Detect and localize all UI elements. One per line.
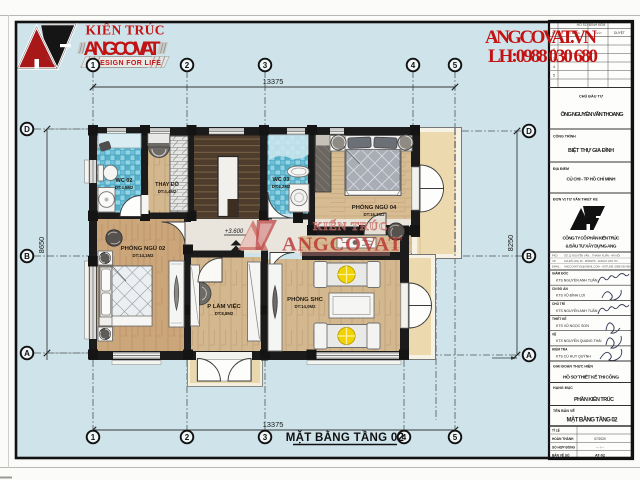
svg-text:VẼ: VẼ [552,331,556,336]
svg-text:1: 1 [91,61,96,70]
svg-text:BIỆT THỰ GIA ĐÌNH: BIỆT THỰ GIA ĐÌNH [568,146,614,154]
svg-text:B: B [526,252,532,261]
svg-text:13375: 13375 [263,420,284,429]
svg-text:8650: 8650 [37,237,46,254]
svg-text:DT:16,1M2: DT:16,1M2 [363,212,385,217]
svg-text:+3.600: +3.600 [225,229,244,235]
svg-text:HẠNG MỤC: HẠNG MỤC [553,386,573,390]
svg-text:4: 4 [411,61,416,70]
svg-text:P LÀM VIỆC: P LÀM VIỆC [207,302,241,310]
svg-text:VP:: VP: [552,259,556,263]
svg-text:GIÁM ĐỐC: GIÁM ĐỐC [552,271,569,276]
svg-text:KTS VŨ NGỌC SƠN: KTS VŨ NGỌC SƠN [556,323,589,328]
svg-text:PKD:: PKD: [552,254,558,258]
svg-text:KIẾN TRÚC: KIẾN TRÚC [86,23,167,38]
svg-text:ÔNG NGUYỄN VĂN THOANG: ÔNG NGUYỄN VĂN THOANG [561,110,625,118]
svg-text:3: 3 [263,433,268,442]
svg-text:DT:14,1M2: DT:14,1M2 [132,253,154,258]
svg-text:13375: 13375 [263,77,284,86]
svg-text:HOÀN THÀNH: HOÀN THÀNH [552,436,574,441]
svg-text:EMAIL:: EMAIL: [552,265,561,269]
svg-text:CÔNG TY CỔ PHẦN KIẾN TRÚC: CÔNG TY CỔ PHẦN KIẾN TRÚC [563,234,621,241]
svg-text:KIỂM TRA: KIỂM TRA [552,346,568,351]
svg-text:DESIGN FOR LIFE: DESIGN FOR LIFE [95,60,162,67]
svg-text:GIAI ĐOẠN THỰC HIỆN: GIAI ĐOẠN THỰC HIỆN [553,364,593,369]
svg-text:PHẦN KIẾN TRÚC: PHẦN KIẾN TRÚC [574,396,614,403]
svg-text:CHỦ TRÌ: CHỦ TRÌ [552,301,565,306]
svg-text:07/2020: 07/2020 [594,437,606,441]
svg-text:5: 5 [553,74,555,78]
svg-text:THIẾT KẾ: THIẾT KẾ [552,316,567,321]
svg-text:KTS CÙ HUY QUỲNH: KTS CÙ HUY QUỲNH [556,354,591,358]
svg-text:CÔNG TRÌNH: CÔNG TRÌNH [553,134,576,139]
svg-text:PHÒNG SHC: PHÒNG SHC [287,295,323,303]
svg-text:KTS NGUYỄN ANH TUẤN: KTS NGUYỄN ANH TUẤN [556,278,598,283]
svg-text:5: 5 [453,433,458,442]
svg-text:DT:14,0M2: DT:14,0M2 [294,304,316,309]
svg-text:SỐ HỢP ĐỒNG: SỐ HỢP ĐỒNG [552,444,576,449]
svg-text:D: D [24,125,30,134]
svg-text:DT:4,5M2: DT:4,5M2 [115,185,134,190]
svg-text:ĐỊA ĐIỂM: ĐỊA ĐIỂM [553,166,569,171]
svg-text:DT:4,4M2: DT:4,4M2 [158,189,177,194]
svg-text:MẶT BẰNG TẦNG 02: MẶT BẰNG TẦNG 02 [286,431,405,444]
svg-text:2: 2 [185,433,190,442]
svg-text:D: D [526,127,532,136]
svg-text:CỦ CHI - TP HỒ CHÍ MINH: CỦ CHI - TP HỒ CHÍ MINH [567,175,616,182]
svg-text:THAY ĐỒ: THAY ĐỒ [155,181,179,188]
svg-text:ANGCOVAT.VN: ANGCOVAT.VN [485,27,597,48]
svg-text:DT:8,8M2: DT:8,8M2 [215,311,234,316]
svg-text:TÊN BẢN VẼ: TÊN BẢN VẼ [553,408,575,413]
svg-text:1: 1 [91,433,96,442]
svg-text:DUYỆT: DUYỆT [614,30,625,35]
svg-text:8250: 8250 [506,235,515,252]
svg-text:— /—: — /— [596,445,605,449]
svg-text:PHÒNG NGỦ 02: PHÒNG NGỦ 02 [121,244,166,252]
svg-text:TỈ LỆ: TỈ LỆ [552,428,560,433]
svg-text:WC 03: WC 03 [272,177,289,183]
svg-text:MẶT BẰNG TẦNG 02: MẶT BẰNG TẦNG 02 [567,416,619,424]
svg-text:CHỦ ĐẦU TƯ: CHỦ ĐẦU TƯ [579,94,604,99]
svg-text:WC 02: WC 02 [115,178,132,184]
svg-text:KIẾN TRÚC: KIẾN TRÚC [313,218,391,233]
svg-text:A: A [526,351,532,360]
svg-text:ANGCOVAT: ANGCOVAT [282,234,402,256]
svg-text:KTS NGUYỄN ANH TUẤN: KTS NGUYỄN ANH TUẤN [556,308,598,313]
svg-text:PHÒNG NGỦ 04: PHÒNG NGỦ 04 [352,203,397,211]
svg-text:KTS NGUYỄN QUANG THÁI: KTS NGUYỄN QUANG THÁI [556,338,601,343]
svg-text:ANGCOVAT.VN@GMAIL.COM - HOTLIN: ANGCOVAT.VN@GMAIL.COM - HOTLINE: 0988 03… [564,265,631,269]
svg-text:LH:0988 030 680: LH:0988 030 680 [488,46,598,67]
svg-text:ĐƠN VỊ TƯ VẤN THIẾT KẾ: ĐƠN VỊ TƯ VẤN THIẾT KẾ [553,197,598,202]
svg-text:A: A [24,349,30,358]
svg-text:2: 2 [185,61,190,70]
svg-text:CN ĐỒ ÁN: CN ĐỒ ÁN [552,286,568,291]
svg-text:3: 3 [263,61,268,70]
svg-text:DT:4,2M2: DT:4,2M2 [272,184,291,189]
svg-text:KTS VŨ ĐÌNH LỢI: KTS VŨ ĐÌNH LỢI [556,293,585,298]
svg-text:& ĐẦU TƯ XÂY DỰNG ANG: & ĐẦU TƯ XÂY DỰNG ANG [566,243,617,249]
svg-text:B: B [24,252,30,261]
svg-text:5: 5 [453,61,458,70]
